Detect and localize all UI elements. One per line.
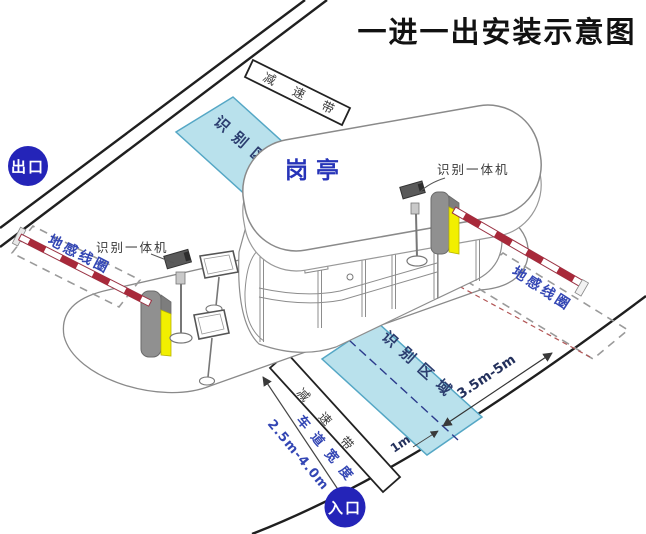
- exit-badge-label: 出口: [11, 158, 45, 176]
- barrier-right-body: [431, 192, 449, 254]
- exit-badge: 出口: [8, 146, 48, 186]
- guard-booth: 岗亭: [235, 97, 550, 353]
- barrier-left-yellow-panel: [161, 310, 171, 356]
- camera-right-base: [407, 256, 427, 266]
- diagram-title: 一进一出安装示意图: [357, 15, 636, 49]
- camera-right-label: 识别一体机: [437, 162, 510, 177]
- display-board-lower-base: [200, 377, 215, 385]
- camera-left-base: [170, 333, 192, 343]
- entrance-badge-label: 入口: [328, 499, 362, 517]
- barrier-machine-right: [431, 192, 459, 254]
- booth-door-handle: [347, 274, 353, 280]
- speed-bump-top-label: 减速带: [261, 69, 355, 125]
- camera-left-bracket: [176, 272, 185, 284]
- entrance-badge: 入口: [325, 487, 366, 528]
- installation-diagram: 减速带 减速带 车道宽度 2.5m-4.0m 识别区域 识别区域 地感线圈 地感…: [0, 0, 646, 534]
- camera-right-bracket: [411, 203, 419, 214]
- speed-bump-top: 减速带: [245, 60, 355, 125]
- loop-distance-measure: 3.5m-5m: [443, 352, 552, 426]
- camera-left-label: 识别一体机: [96, 240, 169, 255]
- camera-right-pole: [416, 214, 417, 257]
- booth-label: 岗亭: [285, 157, 347, 184]
